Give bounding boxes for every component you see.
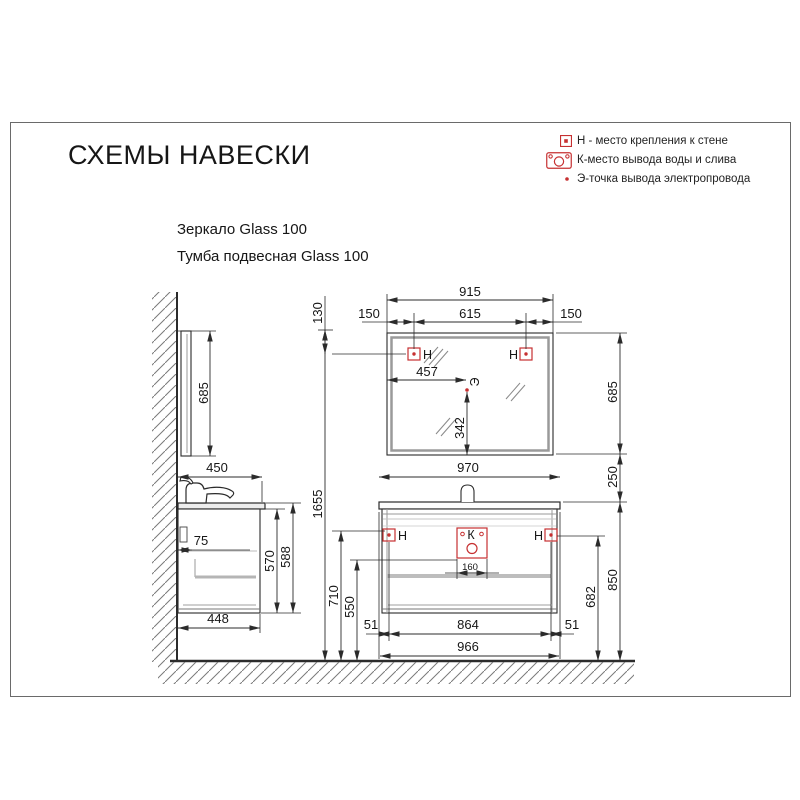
dim-bracket-offset-label: 75 (194, 533, 208, 548)
dim-total-height-label: 1655 (310, 490, 325, 519)
dim-body-height-label: 570 (262, 550, 277, 572)
drawing-sheet: СХЕМЫ НАВЕСКИ Н - место крепления к стен… (0, 0, 800, 800)
floor-section (158, 661, 635, 684)
electric-point (465, 388, 469, 392)
wall-bracket-side (180, 527, 187, 542)
dim-bottom-depth-label: 448 (207, 611, 229, 626)
mirror-front-view (387, 333, 553, 455)
vanity-front-view (379, 485, 560, 613)
mirror-h-right-letter: Н (509, 348, 518, 362)
dim-counter-height-label: 850 (605, 569, 620, 591)
dim-height-with-top-label: 588 (278, 546, 293, 568)
dim-top-to-hole-label: 130 (310, 302, 325, 324)
wall-section (152, 292, 177, 662)
mirror-h-left-letter: Н (423, 348, 432, 362)
dim-drain-height-label: 550 (342, 596, 357, 618)
dim-vanity-holes-label: 864 (457, 617, 479, 632)
dim-vanity-width-label: 966 (457, 639, 479, 654)
dim-hole-offset-left-label: 150 (358, 306, 380, 321)
dim-hole-to-floor-label: 682 (583, 586, 598, 608)
dim-710-label: 710 (326, 585, 341, 607)
dim-mirror-height-front-label: 685 (605, 381, 620, 403)
electric-e-letter: Э (468, 377, 482, 386)
technical-drawing: 915 150 615 150 457 450 75 448 970 160 5… (0, 0, 800, 800)
dim-gap-label: 250 (605, 466, 620, 488)
dim-hole-offset-right-label: 150 (560, 306, 582, 321)
faucet-hole-front (461, 485, 474, 502)
faucet-side (186, 483, 234, 503)
drain-k-letter: К (467, 528, 475, 542)
vanity-h-right-letter: Н (534, 529, 543, 543)
dim-counter-width-label: 970 (457, 460, 479, 475)
vanity-h-left-letter: Н (398, 529, 407, 543)
dim-depth-label: 450 (206, 460, 228, 475)
dim-drain-width-label: 160 (462, 562, 478, 573)
dim-mirror-height-side-label: 685 (196, 382, 211, 404)
dim-electric-y-label: 342 (452, 417, 467, 439)
dim-51-right-label: 51 (565, 617, 579, 632)
dim-hole-spacing-label: 615 (459, 306, 481, 321)
mirror-side-view (181, 331, 191, 456)
dim-electric-x-label: 457 (416, 364, 438, 379)
dim-mirror-width-label: 915 (459, 284, 481, 299)
dim-51-left-label: 51 (364, 617, 378, 632)
vanity-side-view (178, 477, 265, 613)
